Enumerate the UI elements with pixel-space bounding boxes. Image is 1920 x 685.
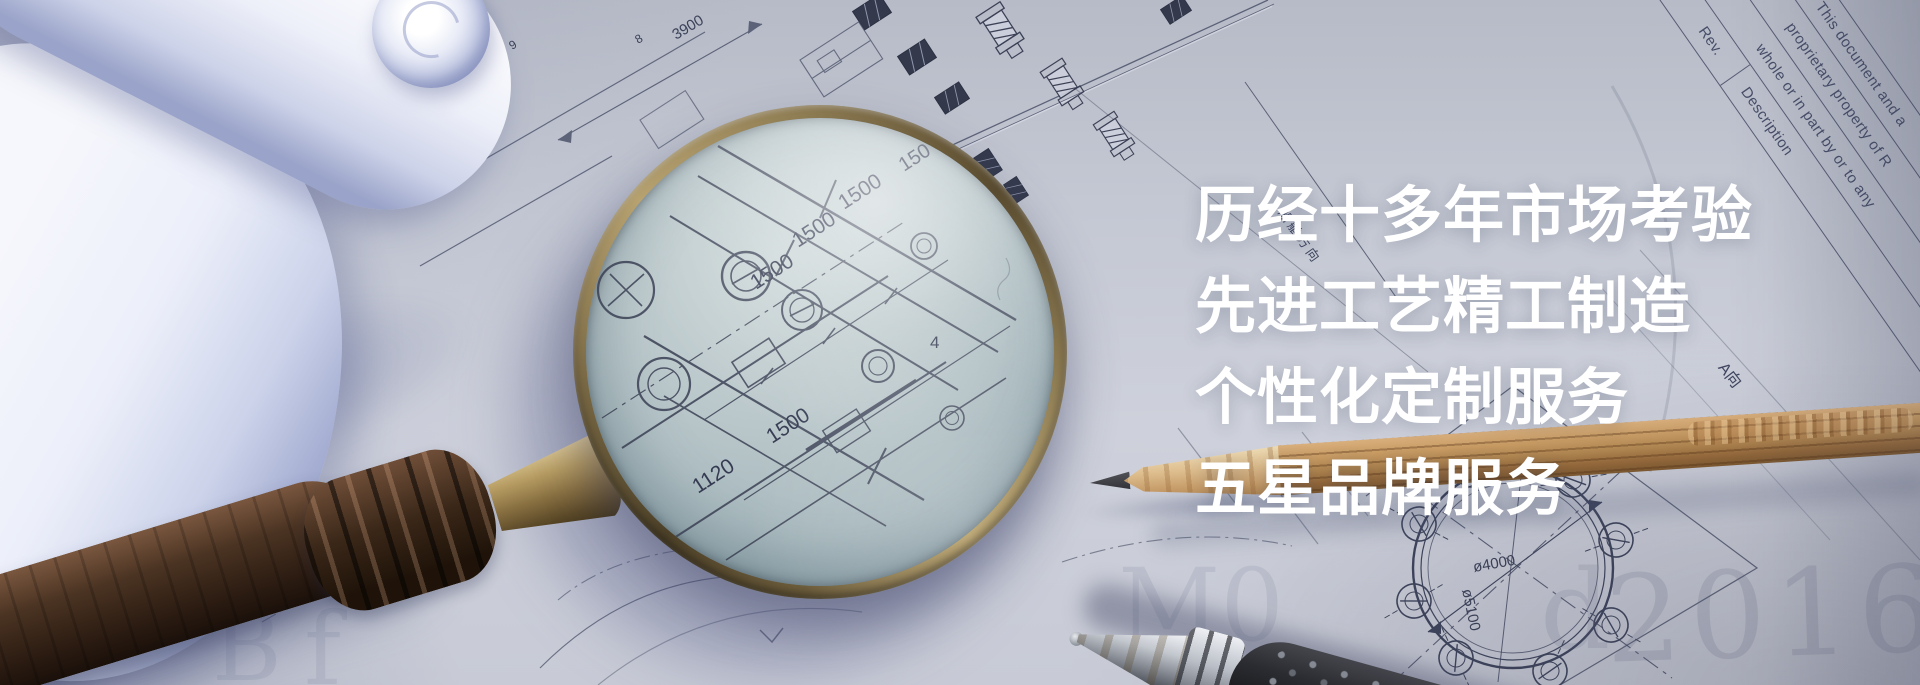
dim-label-8: 8 (632, 31, 645, 47)
ghost-letter-d: d (1540, 546, 1610, 674)
roll-spiral (392, 0, 469, 68)
dia-5100-label: ø5100 (1458, 587, 1483, 632)
magnifier-lens: 150 1500 1500 1500 1500 1120 4 (586, 118, 1054, 586)
ghost-year: 2016— (1603, 536, 1920, 685)
pen-metal-cone (1069, 606, 1193, 685)
hero-banner: 600 3900 8 9 10 ø4000 ø5100 2016— d M0 B… (0, 0, 1920, 685)
dim-label-3900: 3900 (669, 12, 706, 44)
headline-line-3: 个性化定制服务 (1195, 352, 1753, 443)
headline-line-2: 先进工艺精工制造 (1195, 261, 1753, 352)
headline-line-1: 历经十多年市场考验 (1195, 170, 1753, 261)
lens-highlight (586, 118, 1054, 586)
pencil-graphite-tip (1089, 469, 1130, 494)
dim-label-9: 9 (506, 37, 519, 53)
magnifier-rim: 150 1500 1500 1500 1500 1120 4 (573, 105, 1067, 599)
hero-headline: 历经十多年市场考验 先进工艺精工制造 个性化定制服务 五星品牌服务 (1195, 170, 1753, 534)
headline-line-4: 五星品牌服务 (1195, 443, 1753, 534)
